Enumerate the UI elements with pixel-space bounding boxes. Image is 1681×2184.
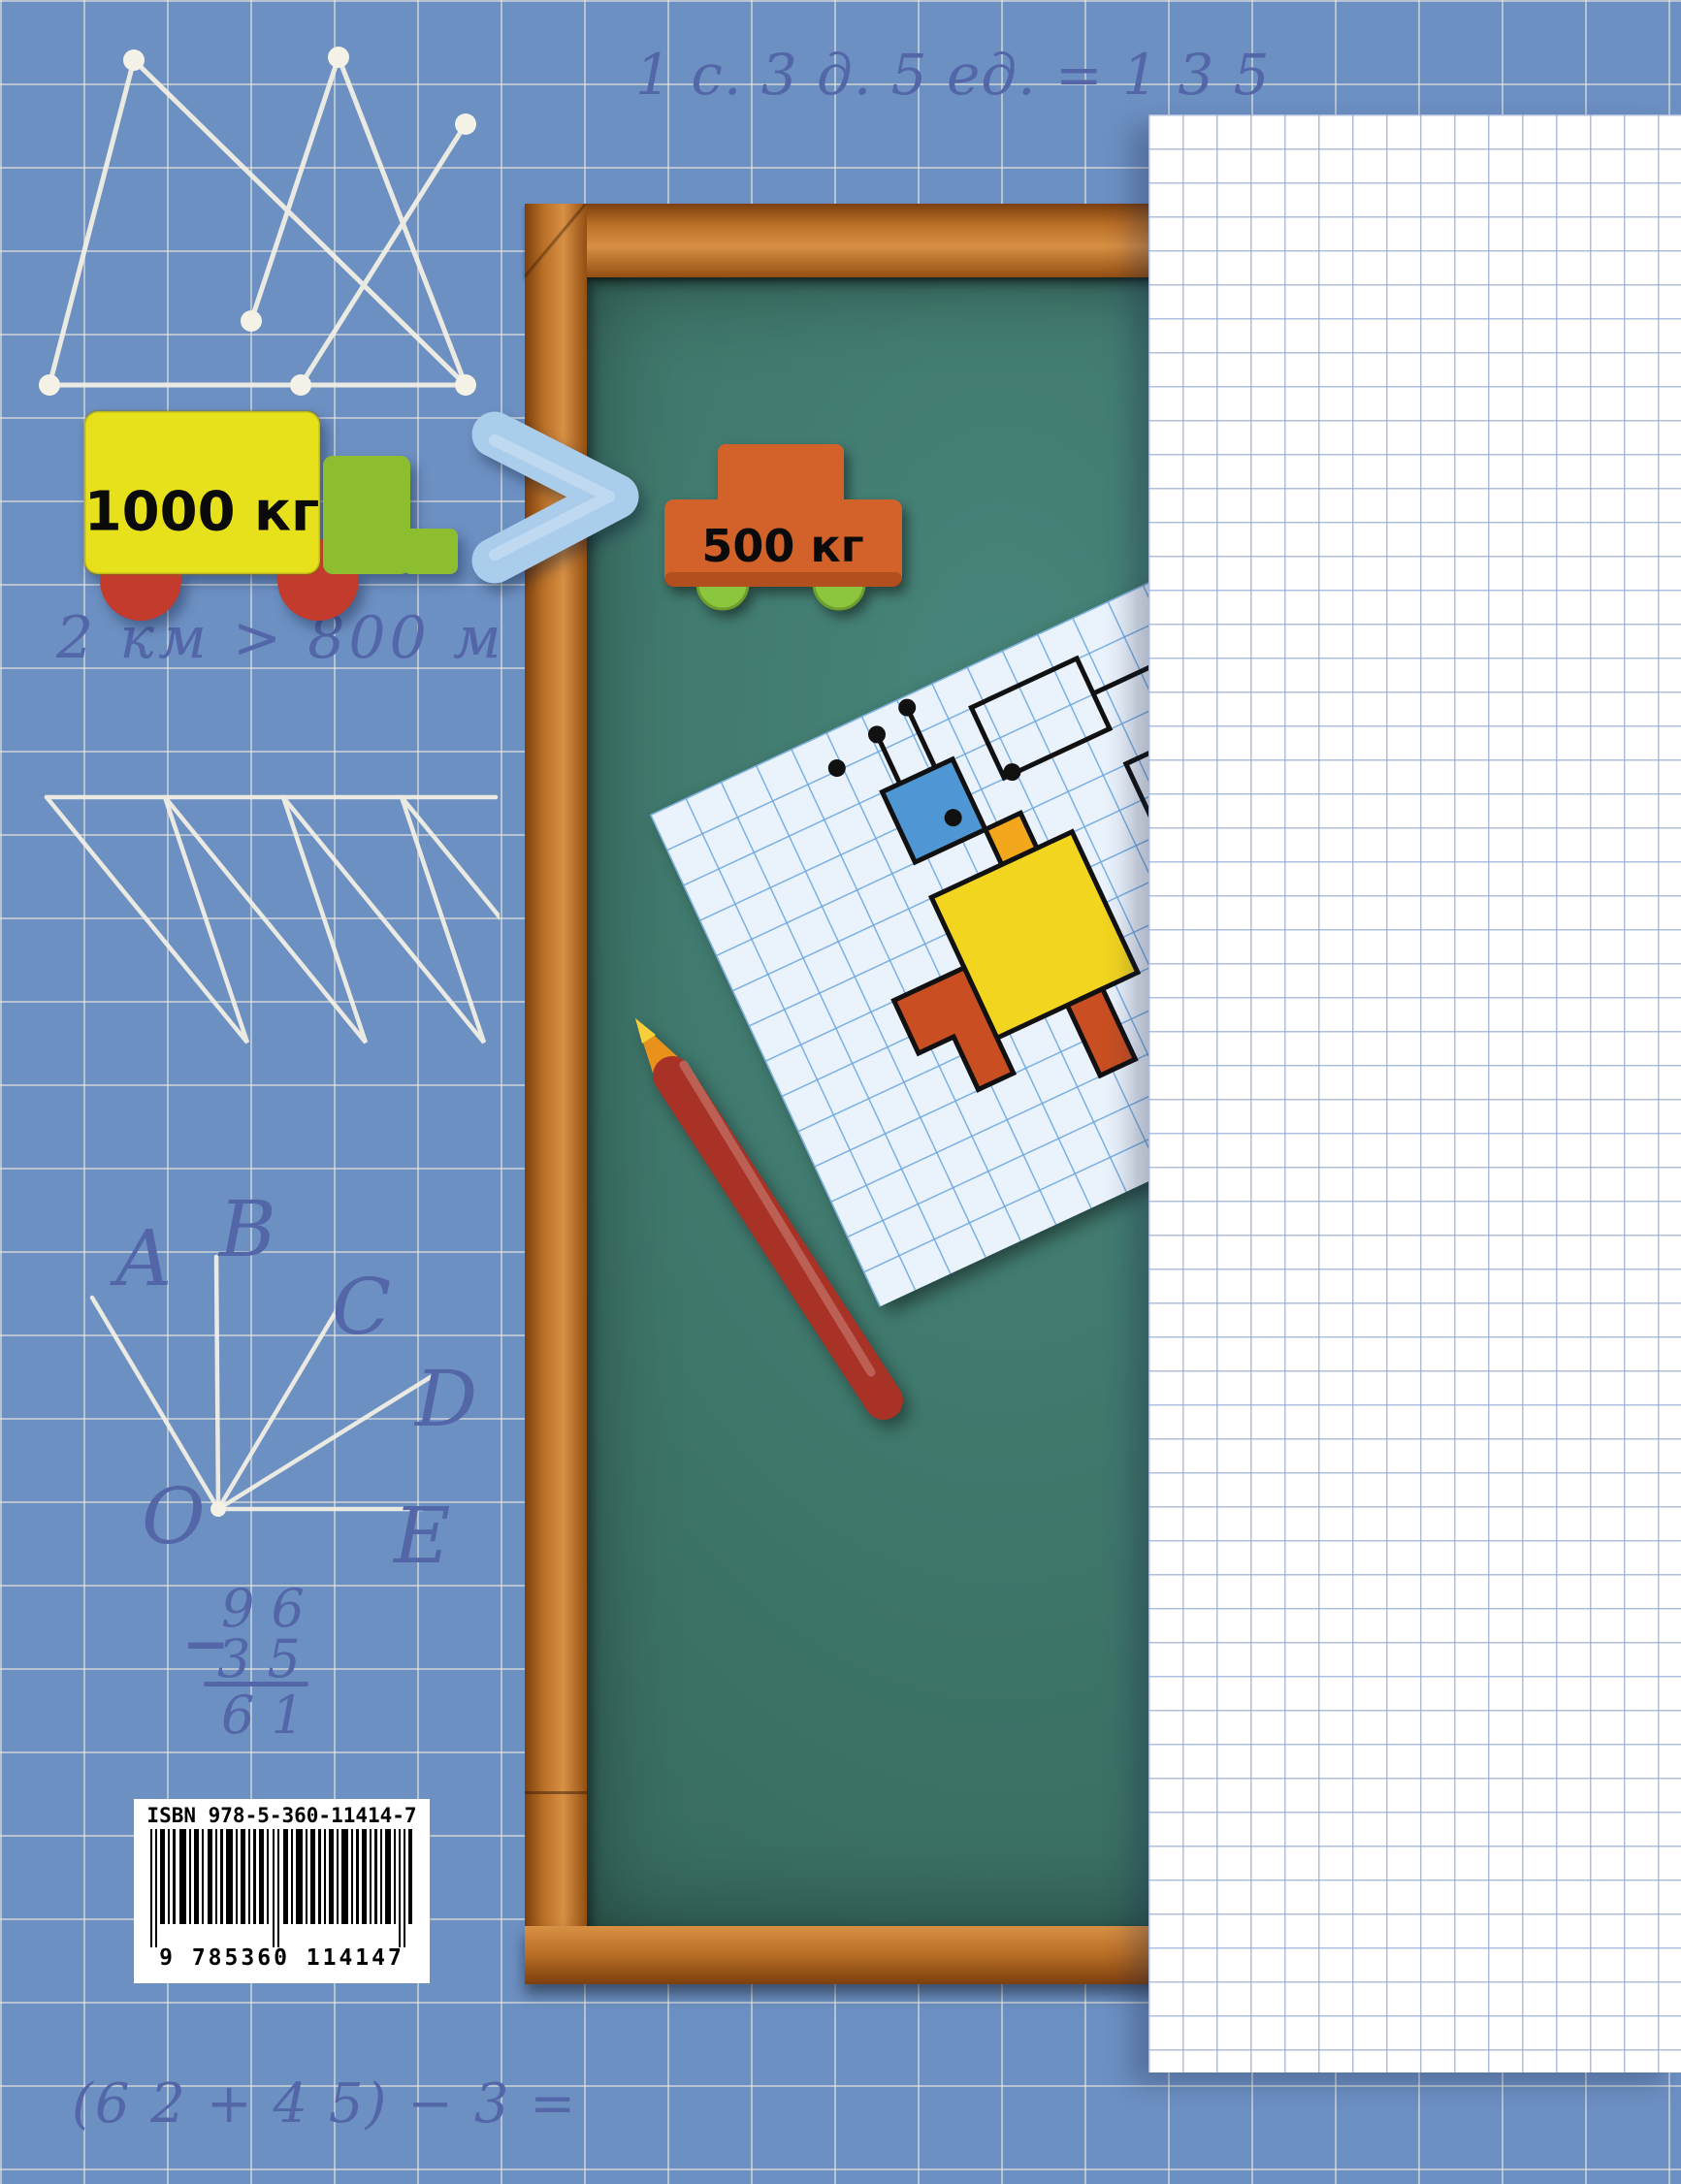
chalkboard-frame-miter-joint (525, 204, 587, 277)
book-back-cover: 1 с. 3 д. 5 ед. = 1 3 5 А В С D О Е − 9 … (0, 0, 1681, 2184)
bottom-expression-handwriting: (6 2 + 4 5) − 3 = (72, 2077, 577, 2132)
ray-label-d: D (415, 1361, 477, 1438)
small-truck-label: 500 кг (701, 520, 863, 572)
rays-figure (44, 1237, 470, 1527)
ray-label-a: А (114, 1220, 174, 1298)
subtraction-difference: 6 1 (221, 1689, 305, 1742)
broken-line-figure (19, 29, 504, 427)
red-marker-pen (601, 989, 931, 1445)
top-equation-handwriting: 1 с. 3 д. 5 ед. = 1 3 5 (635, 47, 1271, 103)
big-truck-cab (323, 456, 410, 574)
chalkboard-frame-joint-line (525, 1791, 587, 1794)
isbn-block: ISBN 978-5-360-11414-7 9 785360 114147 (134, 1799, 430, 1983)
greater-than-icon (456, 398, 679, 606)
ray-label-e: Е (394, 1497, 450, 1575)
ray-label-c: С (332, 1269, 391, 1346)
small-truck-magnet: 500 кг (640, 417, 931, 630)
ray-label-o: О (142, 1478, 206, 1556)
big-truck-label: 1000 кг (84, 481, 320, 544)
ray-label-b: В (219, 1191, 276, 1269)
column-subtraction: − 9 6 3 5 6 1 (175, 1583, 330, 1738)
barcode (150, 1829, 414, 1947)
isbn-text: ISBN 978-5-360-11414-7 (146, 1804, 416, 1827)
subtraction-minuend: 9 6 (221, 1583, 305, 1635)
big-truck-hood (403, 529, 458, 574)
zigzag-triangles-figure (24, 771, 500, 1062)
squared-paper-panel (1148, 114, 1681, 2072)
barcode-digits: 9 785360 114147 (159, 1945, 404, 1971)
subtraction-subtrahend: 3 5 (217, 1633, 301, 1686)
